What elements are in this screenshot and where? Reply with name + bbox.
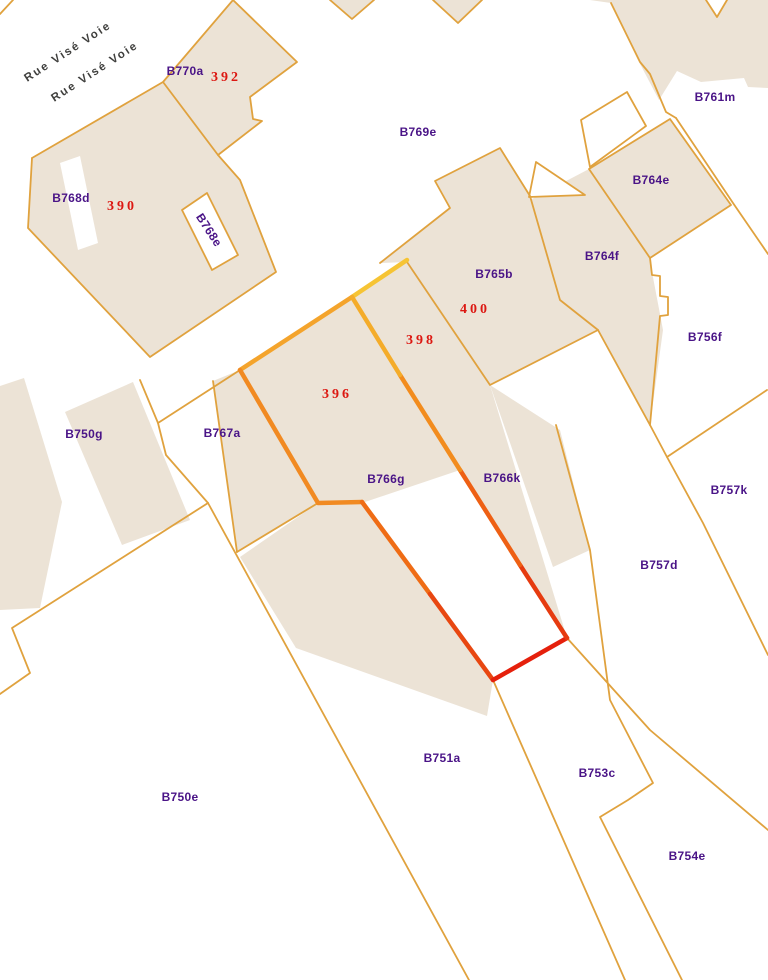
parcel-left-wedge-shape[interactable] xyxy=(0,378,62,610)
parcel-B766g-lower-shape[interactable] xyxy=(240,502,493,716)
boundary-road-right-1 xyxy=(598,330,768,655)
cadastral-map-svg[interactable] xyxy=(0,0,768,980)
boundary-B754e-edge xyxy=(567,638,768,830)
boundary-B756f-B757k-divider xyxy=(667,390,767,457)
highlight-segment-red-bottom[interactable] xyxy=(493,638,567,680)
boundary-topleft-corner xyxy=(0,0,13,14)
cadastral-map-canvas[interactable]: Rue Visé VoieRue Visé VoieB770aB768dB768… xyxy=(0,0,768,980)
boundary-road-B751a-right xyxy=(493,680,625,980)
parcel-B750g-shape[interactable] xyxy=(65,382,190,545)
parcel-corner-triangle-1[interactable] xyxy=(330,0,374,19)
parcel-corner-triangle-2[interactable] xyxy=(433,0,482,23)
